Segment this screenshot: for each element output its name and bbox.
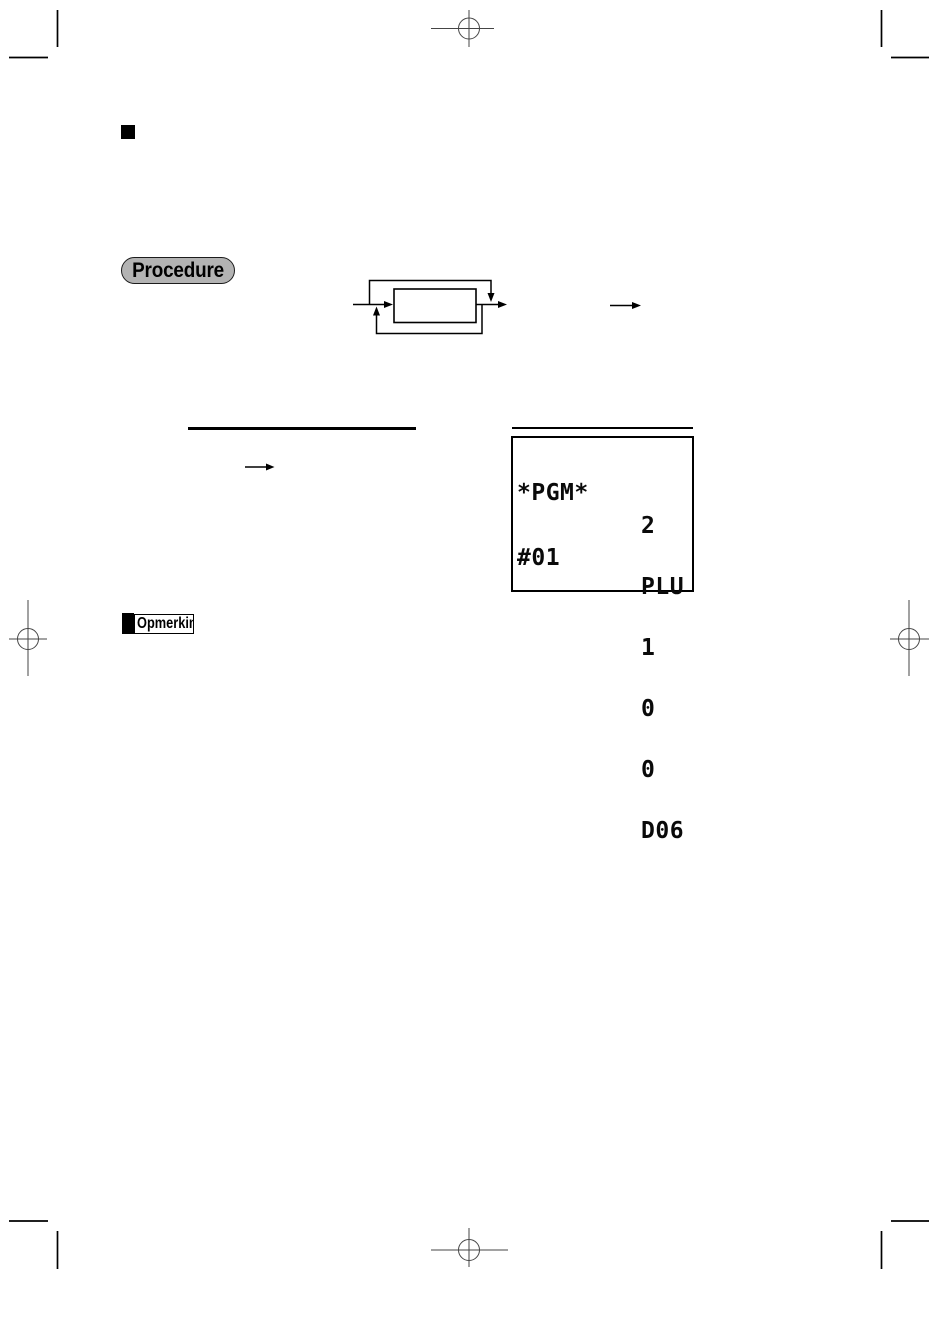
display-right-column: 2 PLU 1 0 0 D06: [641, 475, 727, 882]
display-line-value-2: 0: [641, 699, 727, 719]
display-line-value-3: 0: [641, 760, 727, 780]
display-line-value-1: 1: [641, 638, 727, 658]
step-arrow: [245, 464, 275, 471]
display-line-pgm: *PGM*: [517, 483, 603, 505]
note-badge-label: Opmerking: [137, 615, 194, 633]
arrow-down-icon: [488, 293, 495, 302]
trim-mark-top-right-icon: [882, 10, 930, 58]
display-line-quantity: 2: [641, 516, 727, 536]
arrow-up-icon: [373, 307, 380, 316]
arrow-right-icon: [266, 464, 275, 471]
trim-mark-bottom-right-icon: [882, 1221, 930, 1269]
display-line-dept: D06: [641, 821, 727, 841]
display-left-column: *PGM* #01: [517, 440, 603, 612]
registration-mark-bottom-icon: [431, 1228, 508, 1267]
display-line-plu: PLU: [641, 577, 727, 597]
section-marker-icon: [121, 125, 135, 139]
flow-diagram: [353, 281, 507, 334]
display-line-entry-number: #01: [517, 548, 603, 570]
note-marker-icon: [122, 613, 134, 634]
registration-mark-right-icon: [890, 600, 929, 676]
sequence-arrow: [610, 302, 641, 309]
trim-mark-bottom-left-icon: [9, 1221, 58, 1269]
registration-mark-top-icon: [431, 10, 494, 47]
procedure-badge: Procedure: [121, 257, 235, 284]
flow-key-box: [394, 289, 476, 323]
arrow-right-icon: [384, 301, 393, 308]
registration-mark-left-icon: [9, 600, 47, 676]
manual-page: Procedure *PGM* #01 2 PLU 1 0 0 D06 Opme…: [0, 0, 950, 1344]
note-badge: Opmerking: [134, 614, 194, 634]
register-display-screen: *PGM* #01 2 PLU 1 0 0 D06: [511, 436, 694, 592]
procedure-badge-label: Procedure: [132, 259, 224, 283]
arrow-right-icon: [498, 301, 507, 308]
trim-mark-top-left-icon: [9, 10, 58, 58]
display-top-rule: [512, 427, 693, 429]
example-column-rule: [188, 427, 416, 430]
graphics-layer: [0, 0, 950, 1344]
arrow-right-icon: [632, 302, 641, 309]
